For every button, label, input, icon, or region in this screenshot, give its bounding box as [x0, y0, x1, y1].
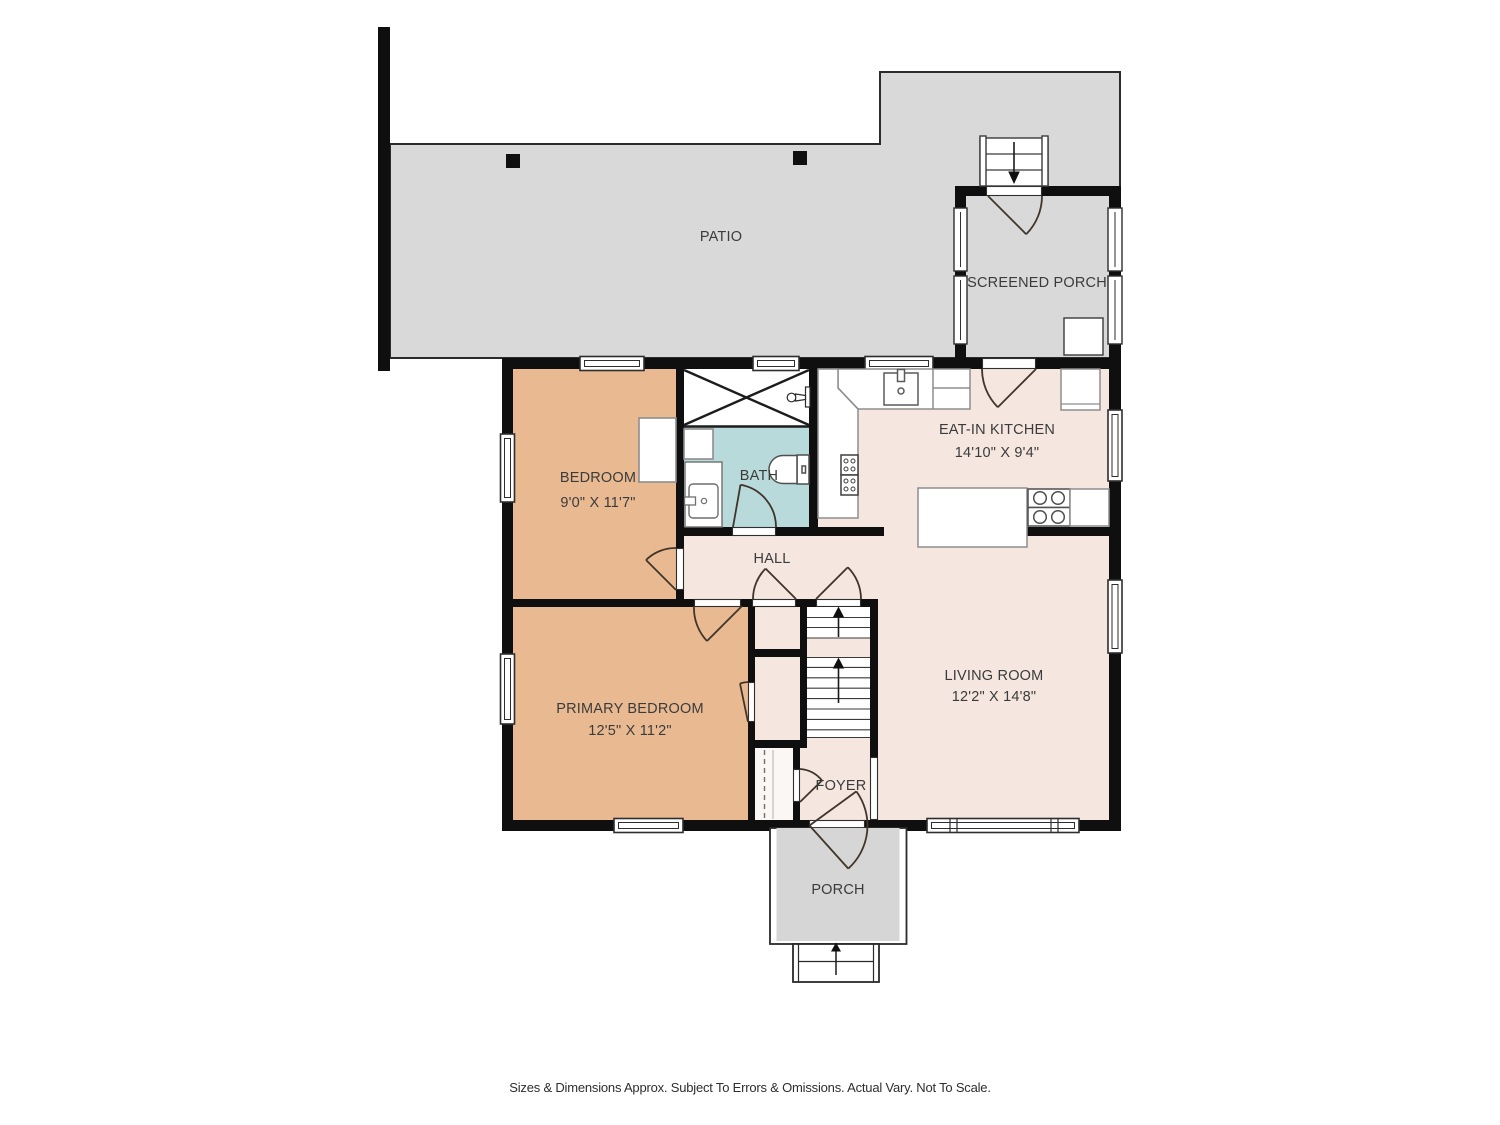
svg-text:12'2" X 14'8": 12'2" X 14'8" — [952, 689, 1037, 705]
svg-text:PATIO: PATIO — [700, 229, 742, 245]
svg-text:EAT-IN KITCHEN: EAT-IN KITCHEN — [939, 422, 1055, 438]
svg-text:9'0" X 11'7": 9'0" X 11'7" — [560, 495, 635, 511]
svg-text:14'10" X 9'4": 14'10" X 9'4" — [955, 445, 1040, 461]
svg-text:FOYER: FOYER — [816, 778, 867, 794]
svg-text:12'5" X 11'2": 12'5" X 11'2" — [588, 723, 671, 739]
svg-text:BEDROOM: BEDROOM — [560, 470, 636, 486]
svg-text:LIVING ROOM: LIVING ROOM — [945, 668, 1044, 684]
svg-text:Sizes & Dimensions Approx. Sub: Sizes & Dimensions Approx. Subject To Er… — [509, 1080, 991, 1095]
svg-text:PORCH: PORCH — [811, 882, 864, 898]
svg-text:PRIMARY BEDROOM: PRIMARY BEDROOM — [556, 701, 704, 717]
svg-text:HALL: HALL — [753, 551, 790, 567]
svg-text:BATH: BATH — [740, 468, 778, 484]
svg-text:SCREENED PORCH: SCREENED PORCH — [967, 275, 1107, 291]
